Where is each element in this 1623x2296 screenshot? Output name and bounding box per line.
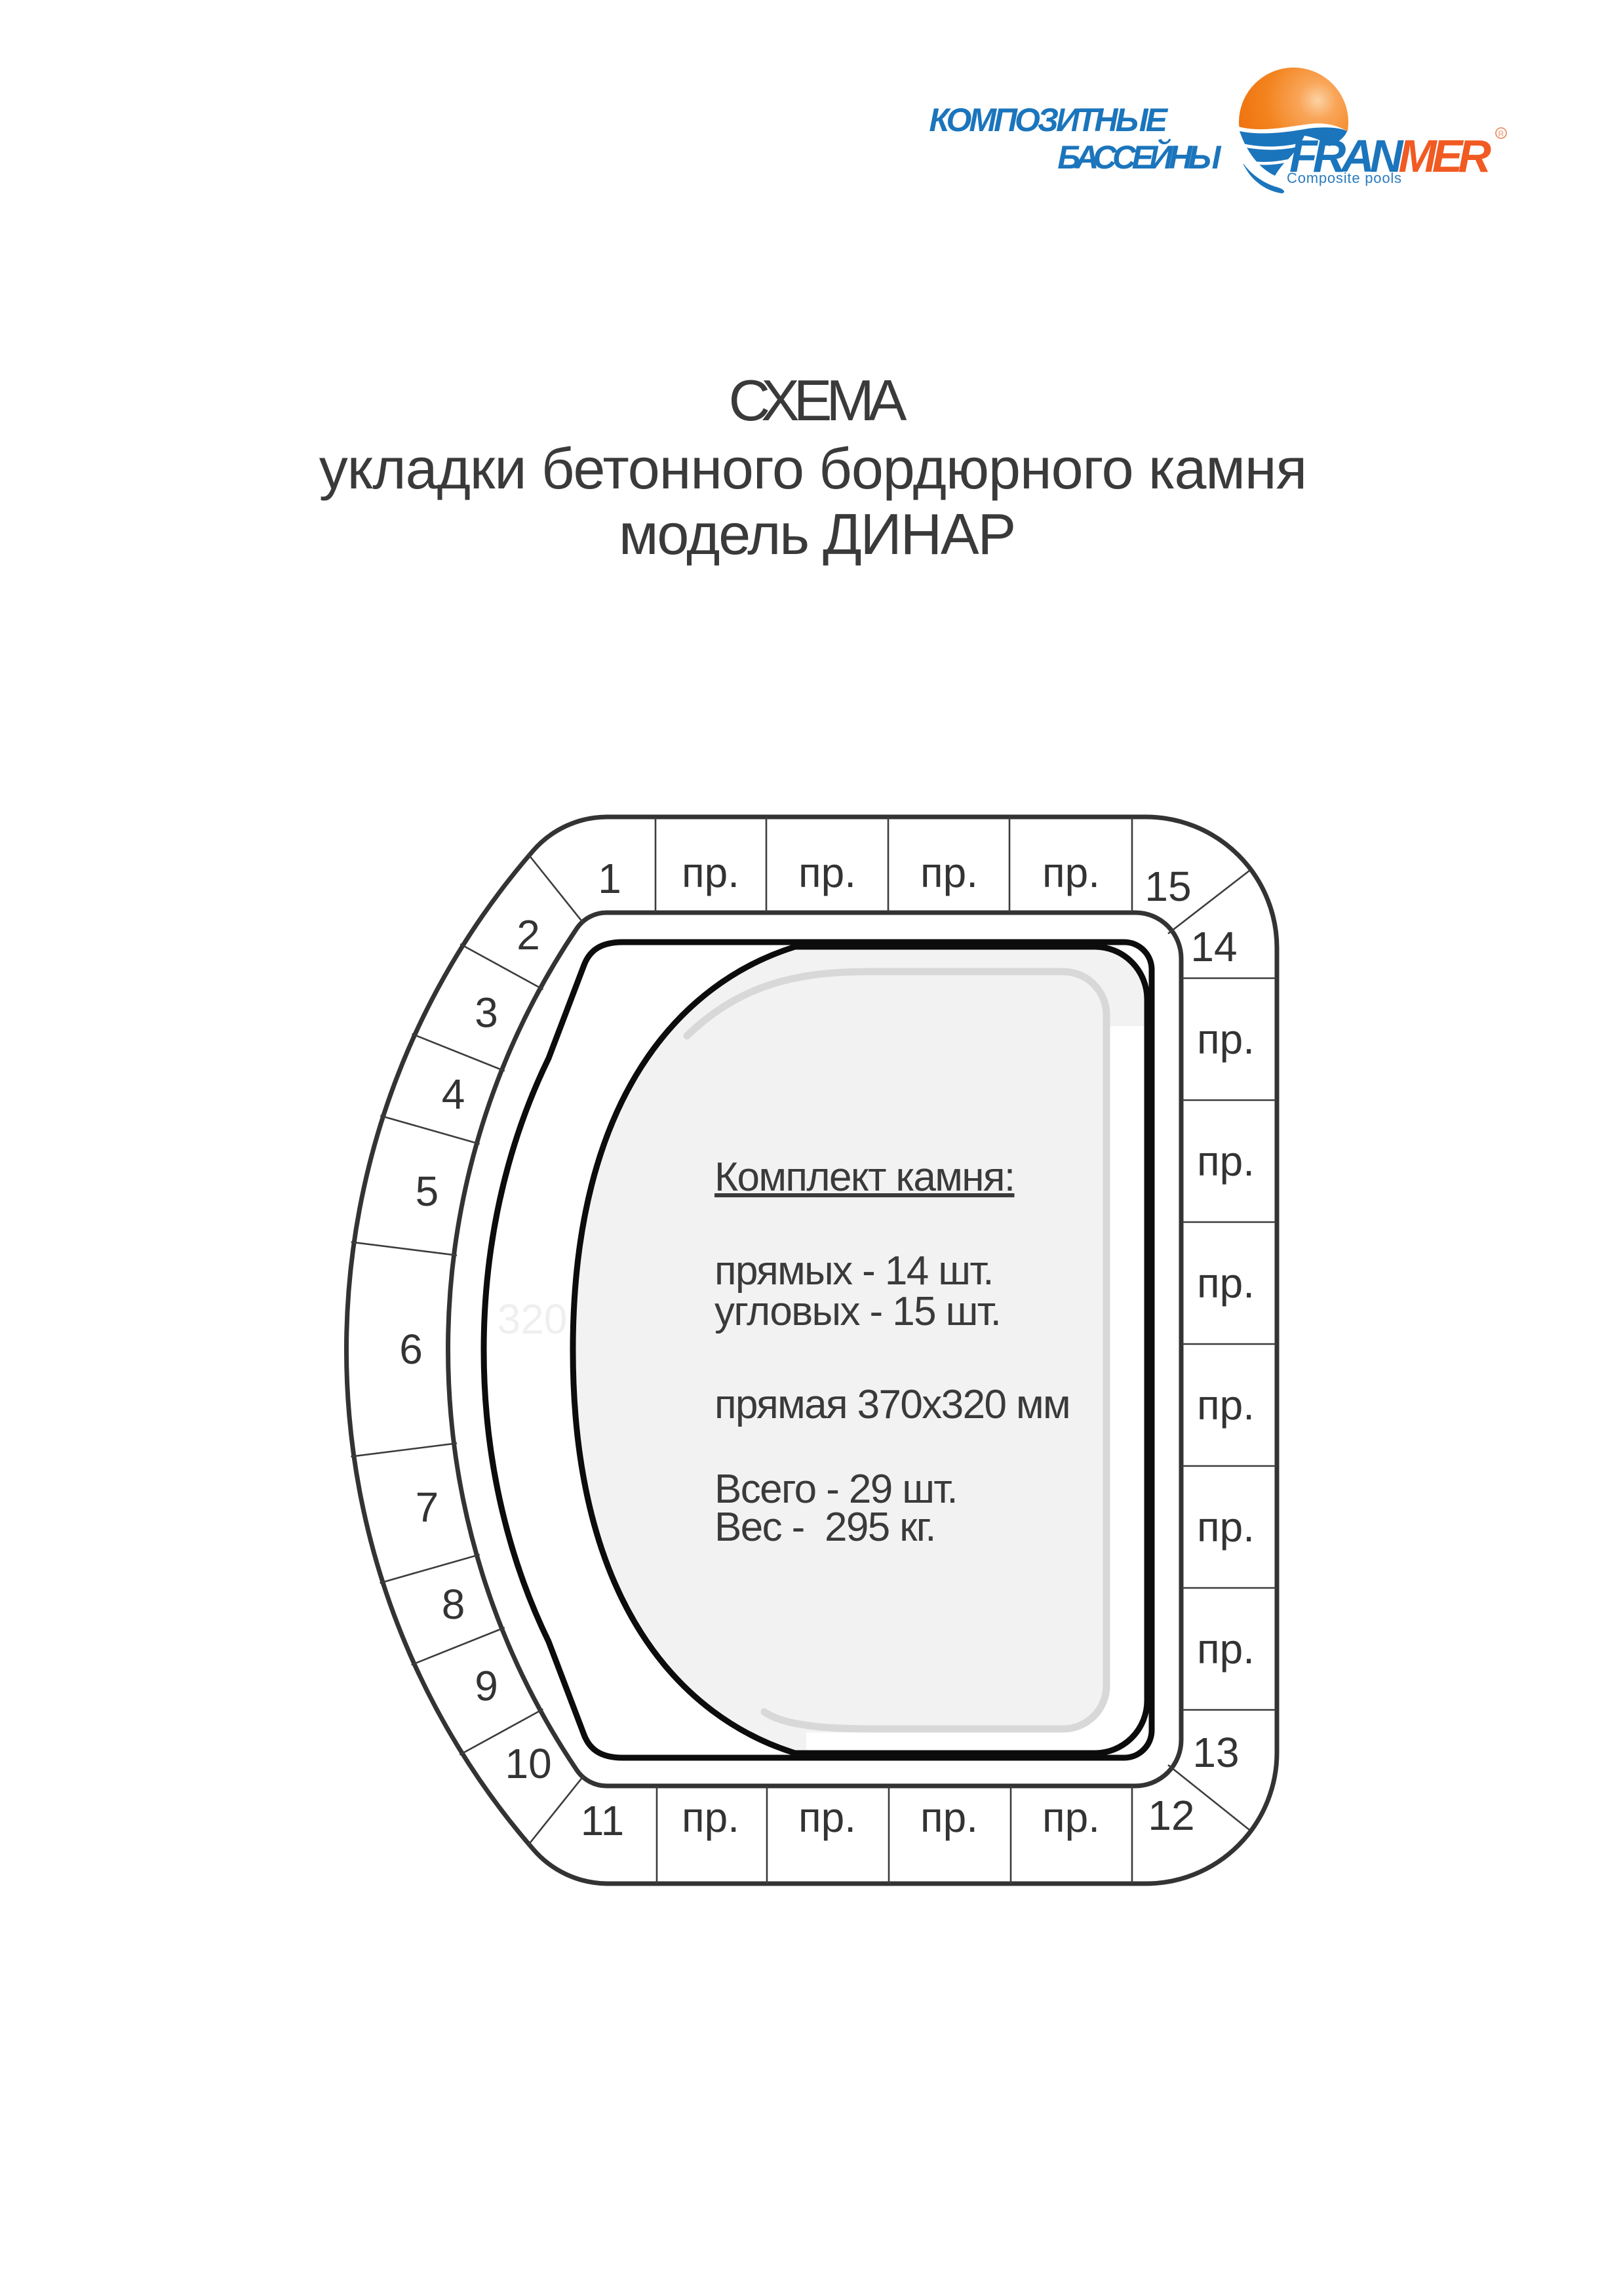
- svg-text:укладки бетонного бордюрного к: укладки бетонного бордюрного камня: [319, 436, 1306, 501]
- svg-text:Комплект камня:: Комплект камня:: [714, 1155, 1015, 1200]
- svg-text:8: 8: [442, 1581, 465, 1628]
- svg-text:9: 9: [475, 1663, 498, 1710]
- svg-text:пр.: пр.: [682, 849, 739, 896]
- svg-text:R: R: [1498, 129, 1504, 138]
- svg-text:пр.: пр.: [1197, 1625, 1255, 1673]
- svg-text:пр.: пр.: [1197, 1503, 1255, 1551]
- svg-text:11: 11: [581, 1797, 624, 1844]
- svg-text:пр.: пр.: [798, 849, 856, 896]
- svg-text:10: 10: [505, 1740, 552, 1787]
- svg-text:3: 3: [475, 989, 498, 1036]
- svg-text:пр.: пр.: [920, 1794, 978, 1841]
- svg-text:пр.: пр.: [920, 849, 978, 896]
- svg-text:пр.: пр.: [1197, 1016, 1255, 1063]
- svg-text:7: 7: [416, 1484, 439, 1531]
- svg-text:5: 5: [416, 1168, 439, 1215]
- svg-text:пр.: пр.: [682, 1794, 739, 1841]
- svg-text:6: 6: [399, 1326, 423, 1373]
- svg-text:Composite pools: Composite pools: [1287, 170, 1402, 186]
- svg-text:СХЕМА: СХЕМА: [729, 368, 907, 433]
- svg-text:пр.: пр.: [1042, 1794, 1100, 1841]
- svg-text:15: 15: [1144, 863, 1191, 910]
- svg-text:12: 12: [1148, 1792, 1194, 1839]
- svg-text:КОМПОЗИТНЫЕ: КОМПОЗИТНЫЕ: [929, 102, 1168, 138]
- svg-text:модель ДИНАР: модель ДИНАР: [619, 502, 1015, 566]
- svg-text:1: 1: [598, 855, 621, 902]
- svg-text:2: 2: [517, 911, 540, 959]
- svg-text:пр.: пр.: [1197, 1381, 1255, 1429]
- svg-text:пр.: пр.: [1042, 849, 1100, 896]
- svg-text:Вес - 295 кг.: Вес - 295 кг.: [714, 1505, 935, 1550]
- svg-text:4: 4: [442, 1071, 465, 1118]
- svg-text:прямая 370х320 мм: прямая 370х320 мм: [714, 1382, 1070, 1427]
- svg-text:пр.: пр.: [1197, 1138, 1255, 1185]
- svg-text:БАССЕЙНЫ: БАССЕЙНЫ: [1057, 138, 1221, 176]
- svg-text:пр.: пр.: [798, 1794, 856, 1841]
- svg-text:угловых - 15 шт.: угловых - 15 шт.: [714, 1289, 1000, 1334]
- svg-text:320: 320: [498, 1296, 568, 1343]
- svg-text:пр.: пр.: [1197, 1259, 1255, 1307]
- svg-text:прямых - 14 шт.: прямых - 14 шт.: [714, 1248, 993, 1294]
- svg-text:14: 14: [1190, 923, 1237, 970]
- svg-text:13: 13: [1192, 1729, 1239, 1776]
